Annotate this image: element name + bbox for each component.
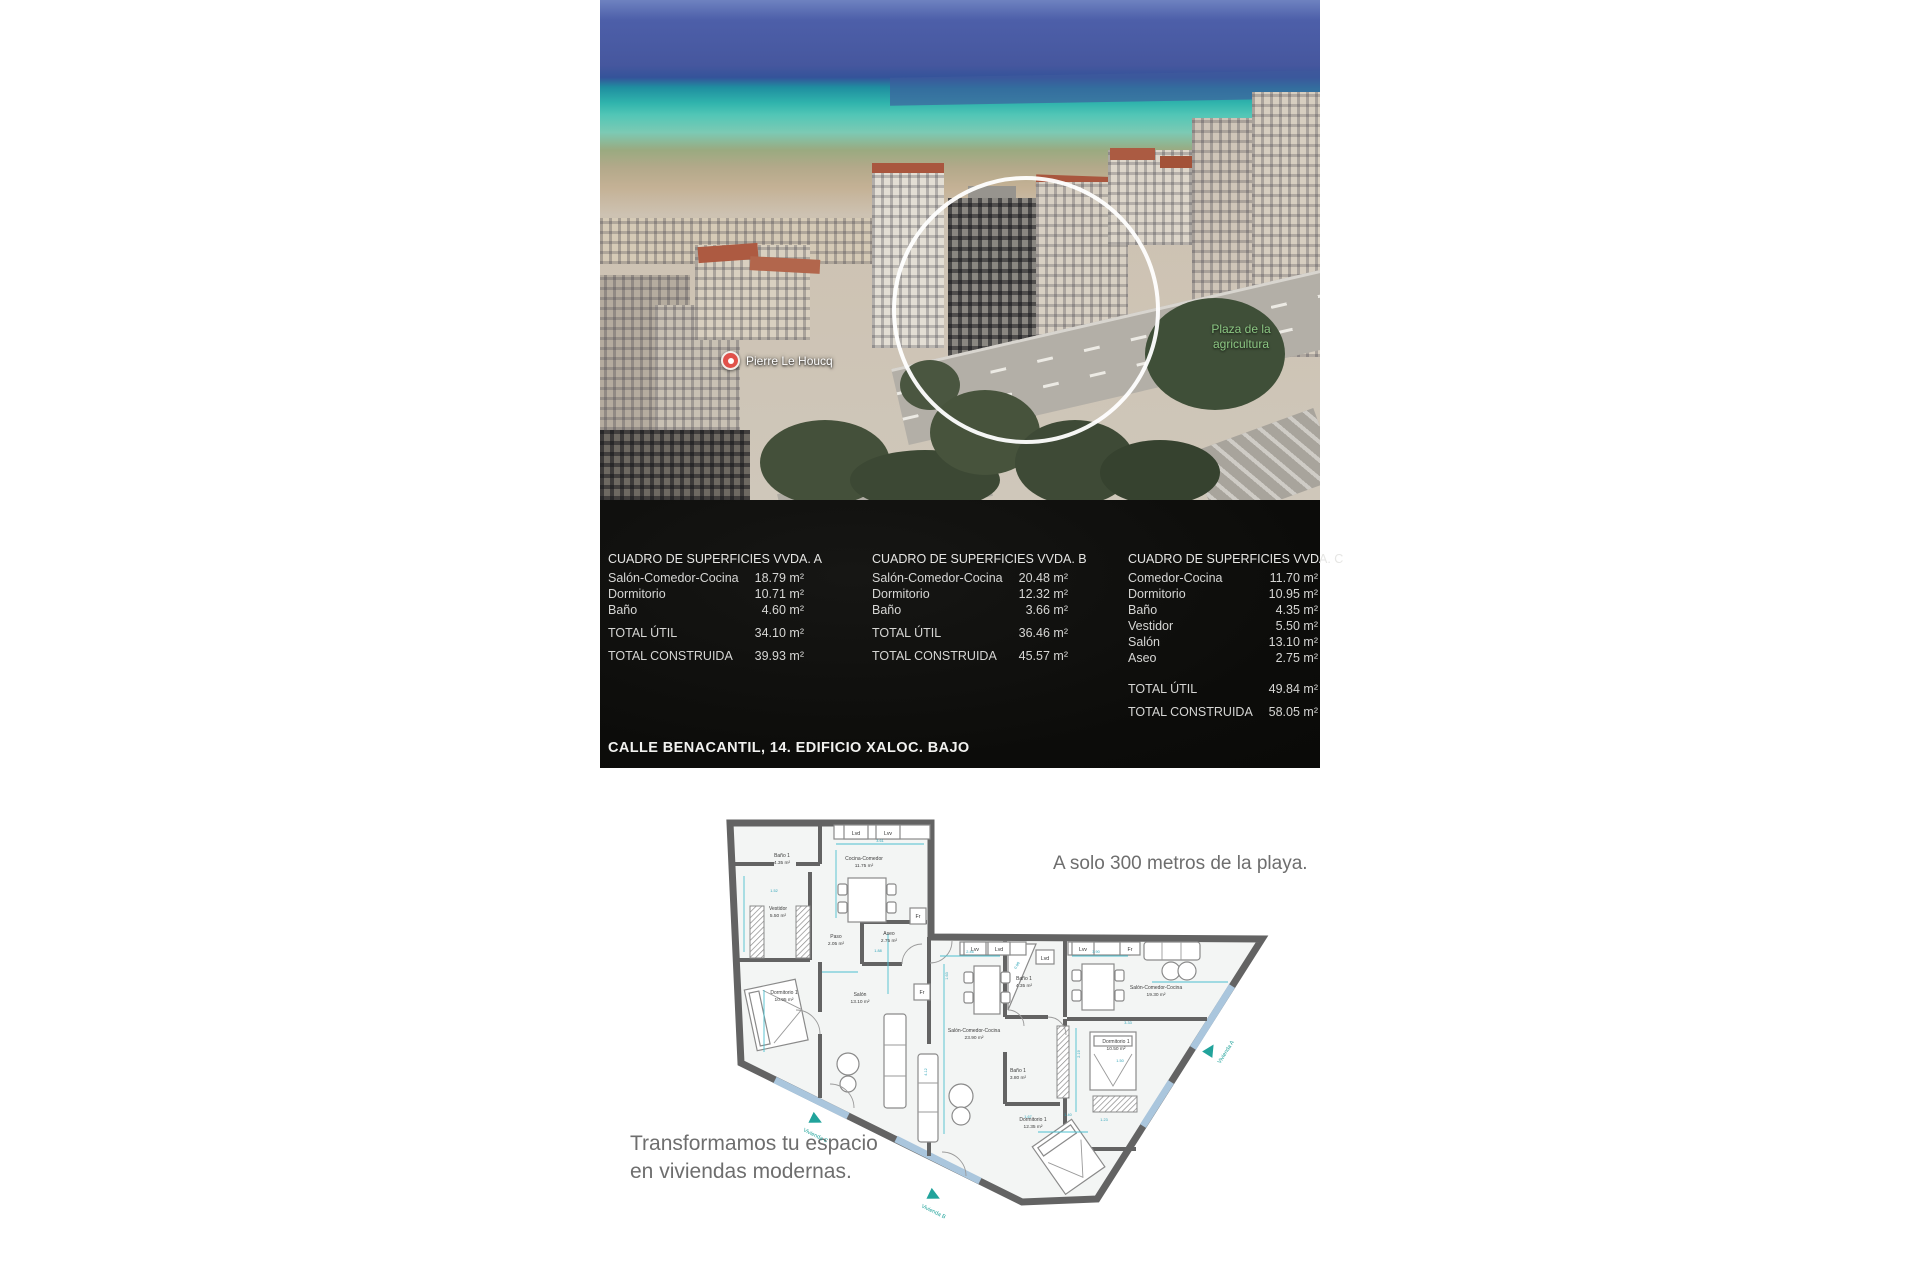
- table-title: CUADRO DE SUPERFICIES VVDA. A: [608, 551, 804, 567]
- unit-marker-c: Vivienda C: [802, 1111, 836, 1144]
- table-row: Aseo2.75 m²: [1128, 650, 1318, 666]
- row-label: Vestidor: [1128, 618, 1173, 634]
- row-label: Baño: [1128, 602, 1157, 618]
- address-line: CALLE BENACANTIL, 14. EDIFICIO XALOC. BA…: [608, 740, 970, 756]
- total-construida-row: TOTAL CONSTRUIDA45.57 m²: [872, 648, 1068, 664]
- row-label: Baño: [608, 602, 637, 618]
- row-label: TOTAL CONSTRUIDA: [872, 648, 997, 664]
- svg-text:10.95 m²: 10.95 m²: [775, 997, 794, 1003]
- table-row: Dormitorio10.95 m²: [1128, 586, 1318, 602]
- surfaces-table-c: CUADRO DE SUPERFICIES VVDA. C Comedor-Co…: [1128, 551, 1318, 720]
- svg-text:3.61: 3.61: [876, 839, 883, 843]
- table-title: CUADRO DE SUPERFICIES VVDA. B: [872, 551, 1068, 567]
- table-row: Baño4.35 m²: [1128, 602, 1318, 618]
- svg-text:1.88: 1.88: [874, 949, 881, 953]
- svg-text:Paso: Paso: [830, 934, 842, 940]
- row-label: Dormitorio: [872, 586, 930, 602]
- svg-text:1.40: 1.40: [1064, 1113, 1071, 1117]
- svg-text:Lvv: Lvv: [884, 831, 892, 837]
- table-row: Salón13.10 m²: [1128, 634, 1318, 650]
- svg-text:Lvv: Lvv: [1079, 947, 1087, 953]
- svg-text:11.75 m²: 11.75 m²: [855, 863, 874, 869]
- total-util-row: TOTAL ÚTIL34.10 m²: [608, 625, 804, 641]
- row-value: 4.35 m²: [1276, 602, 1318, 618]
- row-label: TOTAL ÚTIL: [1128, 681, 1197, 697]
- sofa: [884, 1014, 906, 1108]
- row-label: Aseo: [1128, 650, 1157, 666]
- map-poi: Pierre Le Houcq: [721, 351, 833, 370]
- svg-text:Cocina-Comedor: Cocina-Comedor: [845, 856, 883, 862]
- row-label: Salón-Comedor-Cocina: [608, 570, 739, 586]
- svg-text:3.80 m²: 3.80 m²: [1010, 1075, 1027, 1081]
- row-label: Dormitorio: [1128, 586, 1186, 602]
- svg-text:13.10 m²: 13.10 m²: [851, 999, 870, 1005]
- row-label: TOTAL ÚTIL: [608, 625, 677, 641]
- trees: [1145, 298, 1285, 410]
- page: Pierre Le Houcq Plaza de la agricultura …: [0, 0, 1920, 1280]
- wardrobe: [750, 906, 764, 958]
- row-value: 13.10 m²: [1269, 634, 1318, 650]
- svg-text:Lvd: Lvd: [995, 947, 1003, 953]
- svg-text:2.75 m²: 2.75 m²: [881, 938, 898, 944]
- svg-text:Baño 1: Baño 1: [774, 853, 790, 859]
- surfaces-table-b: CUADRO DE SUPERFICIES VVDA. B Salón-Come…: [872, 551, 1068, 664]
- svg-text:2.19: 2.19: [1077, 1050, 1081, 1057]
- row-value: 34.10 m²: [755, 625, 804, 641]
- svg-text:4.35 m²: 4.35 m²: [1016, 983, 1033, 989]
- table-row: Salón-Comedor-Cocina20.48 m²: [872, 570, 1068, 586]
- table-title: CUADRO DE SUPERFICIES VVDA. C: [1128, 551, 1318, 567]
- svg-text:Dormitorio 1: Dormitorio 1: [1102, 1039, 1129, 1045]
- row-value: 10.71 m²: [755, 586, 804, 602]
- svg-text:4.35 m²: 4.35 m²: [774, 860, 791, 866]
- total-construida-row: TOTAL CONSTRUIDA58.05 m²: [1128, 704, 1318, 720]
- svg-text:Vivienda B: Vivienda B: [920, 1204, 946, 1221]
- row-value: 58.05 m²: [1269, 704, 1318, 720]
- svg-text:Dormitorio 1: Dormitorio 1: [1019, 1117, 1046, 1123]
- sofa: [918, 1054, 938, 1142]
- svg-text:10.50 m²: 10.50 m²: [1107, 1046, 1126, 1052]
- row-value: 20.48 m²: [1019, 570, 1068, 586]
- svg-text:3.33: 3.33: [1124, 1021, 1131, 1025]
- row-label: Baño: [872, 602, 901, 618]
- svg-text:Dormitorio 1: Dormitorio 1: [770, 990, 797, 996]
- svg-text:19.30 m²: 19.30 m²: [1147, 992, 1166, 998]
- svg-text:Fr: Fr: [920, 990, 925, 996]
- svg-text:Fr: Fr: [1128, 947, 1133, 953]
- floor-plan: 3.61 1.52 1.88 2.46 1.63 3.90 0.96 4.12 …: [712, 814, 1277, 1238]
- svg-text:4.12: 4.12: [924, 1068, 928, 1075]
- row-value: 5.50 m²: [1276, 618, 1318, 634]
- table-row: Dormitorio10.71 m²: [608, 586, 804, 602]
- row-label: TOTAL CONSTRUIDA: [608, 648, 733, 664]
- svg-text:Lvd: Lvd: [1041, 956, 1049, 962]
- park-label-line1: Plaza de la: [1191, 322, 1291, 337]
- roof: [1110, 148, 1155, 160]
- row-label: Salón-Comedor-Cocina: [872, 570, 1003, 586]
- stairs: [1093, 1096, 1137, 1112]
- svg-text:1.23: 1.23: [1100, 1118, 1107, 1122]
- unit-marker-b: Vivienda B: [920, 1187, 954, 1220]
- svg-text:Vivienda C: Vivienda C: [802, 1128, 828, 1145]
- svg-text:5.50 m²: 5.50 m²: [770, 913, 787, 919]
- svg-text:Lvv: Lvv: [971, 947, 979, 953]
- map-pin-icon: [721, 351, 740, 370]
- svg-text:2.05 m²: 2.05 m²: [828, 941, 845, 947]
- svg-text:Baño 1: Baño 1: [1010, 1068, 1026, 1074]
- svg-text:Baño 1: Baño 1: [1016, 976, 1032, 982]
- closet: [1057, 1026, 1069, 1098]
- table-row: Comedor-Cocina11.70 m²: [1128, 570, 1318, 586]
- svg-text:1.50: 1.50: [1116, 1059, 1123, 1063]
- row-value: 45.57 m²: [1019, 648, 1068, 664]
- svg-text:Vestidor: Vestidor: [769, 906, 787, 912]
- table-row: Salón-Comedor-Cocina18.79 m²: [608, 570, 804, 586]
- row-value: 18.79 m²: [755, 570, 804, 586]
- row-value: 3.66 m²: [1026, 602, 1068, 618]
- svg-text:3.90: 3.90: [1092, 950, 1099, 954]
- row-value: 11.70 m²: [1270, 570, 1318, 586]
- row-label: Comedor-Cocina: [1128, 570, 1222, 586]
- row-value: 2.75 m²: [1276, 650, 1318, 666]
- svg-text:Salón-Comedor-Cocina: Salón-Comedor-Cocina: [948, 1028, 1000, 1034]
- row-value: 10.95 m²: [1269, 586, 1318, 602]
- park-label-line2: agricultura: [1191, 337, 1291, 352]
- unit-marker-a: Vivienda A: [1202, 1030, 1236, 1065]
- table-row: Baño4.60 m²: [608, 602, 804, 618]
- sofa: [1144, 942, 1200, 960]
- table-row: Dormitorio12.32 m²: [872, 586, 1068, 602]
- surfaces-panel: CUADRO DE SUPERFICIES VVDA. A Salón-Come…: [600, 500, 1320, 768]
- svg-text:Salón: Salón: [854, 992, 867, 998]
- table-row: Vestidor5.50 m²: [1128, 618, 1318, 634]
- svg-text:Fr: Fr: [916, 914, 921, 920]
- aerial-photo: Pierre Le Houcq Plaza de la agricultura: [600, 0, 1320, 500]
- svg-text:12.35 m²: 12.35 m²: [1024, 1124, 1043, 1130]
- row-value: 39.93 m²: [755, 648, 804, 664]
- svg-text:Vivienda A: Vivienda A: [1217, 1040, 1236, 1065]
- building: [600, 430, 750, 500]
- row-value: 12.32 m²: [1019, 586, 1068, 602]
- trees: [1100, 440, 1220, 500]
- row-label: TOTAL CONSTRUIDA: [1128, 704, 1253, 720]
- total-util-row: TOTAL ÚTIL36.46 m²: [872, 625, 1068, 641]
- svg-text:1.63: 1.63: [945, 972, 949, 979]
- row-label: TOTAL ÚTIL: [872, 625, 941, 641]
- roof: [872, 163, 944, 173]
- row-value: 4.60 m²: [762, 602, 804, 618]
- building-highlight-circle: [892, 176, 1160, 444]
- poi-label: Pierre Le Houcq: [746, 354, 833, 368]
- row-value: 49.84 m²: [1269, 681, 1318, 697]
- svg-text:Aseo: Aseo: [883, 931, 895, 937]
- row-label: Salón: [1128, 634, 1160, 650]
- surfaces-table-a: CUADRO DE SUPERFICIES VVDA. A Salón-Come…: [608, 551, 804, 664]
- wardrobe: [796, 906, 810, 958]
- park-label: Plaza de la agricultura: [1191, 322, 1291, 352]
- row-label: Dormitorio: [608, 586, 666, 602]
- svg-text:23.90 m²: 23.90 m²: [965, 1035, 984, 1041]
- total-construida-row: TOTAL CONSTRUIDA39.93 m²: [608, 648, 804, 664]
- total-util-row: TOTAL ÚTIL49.84 m²: [1128, 681, 1318, 697]
- row-value: 36.46 m²: [1019, 625, 1068, 641]
- svg-text:Salón-Comedor-Cocina: Salón-Comedor-Cocina: [1130, 985, 1182, 991]
- svg-text:Lvd: Lvd: [852, 831, 860, 837]
- svg-text:1.52: 1.52: [770, 889, 777, 893]
- table-row: Baño3.66 m²: [872, 602, 1068, 618]
